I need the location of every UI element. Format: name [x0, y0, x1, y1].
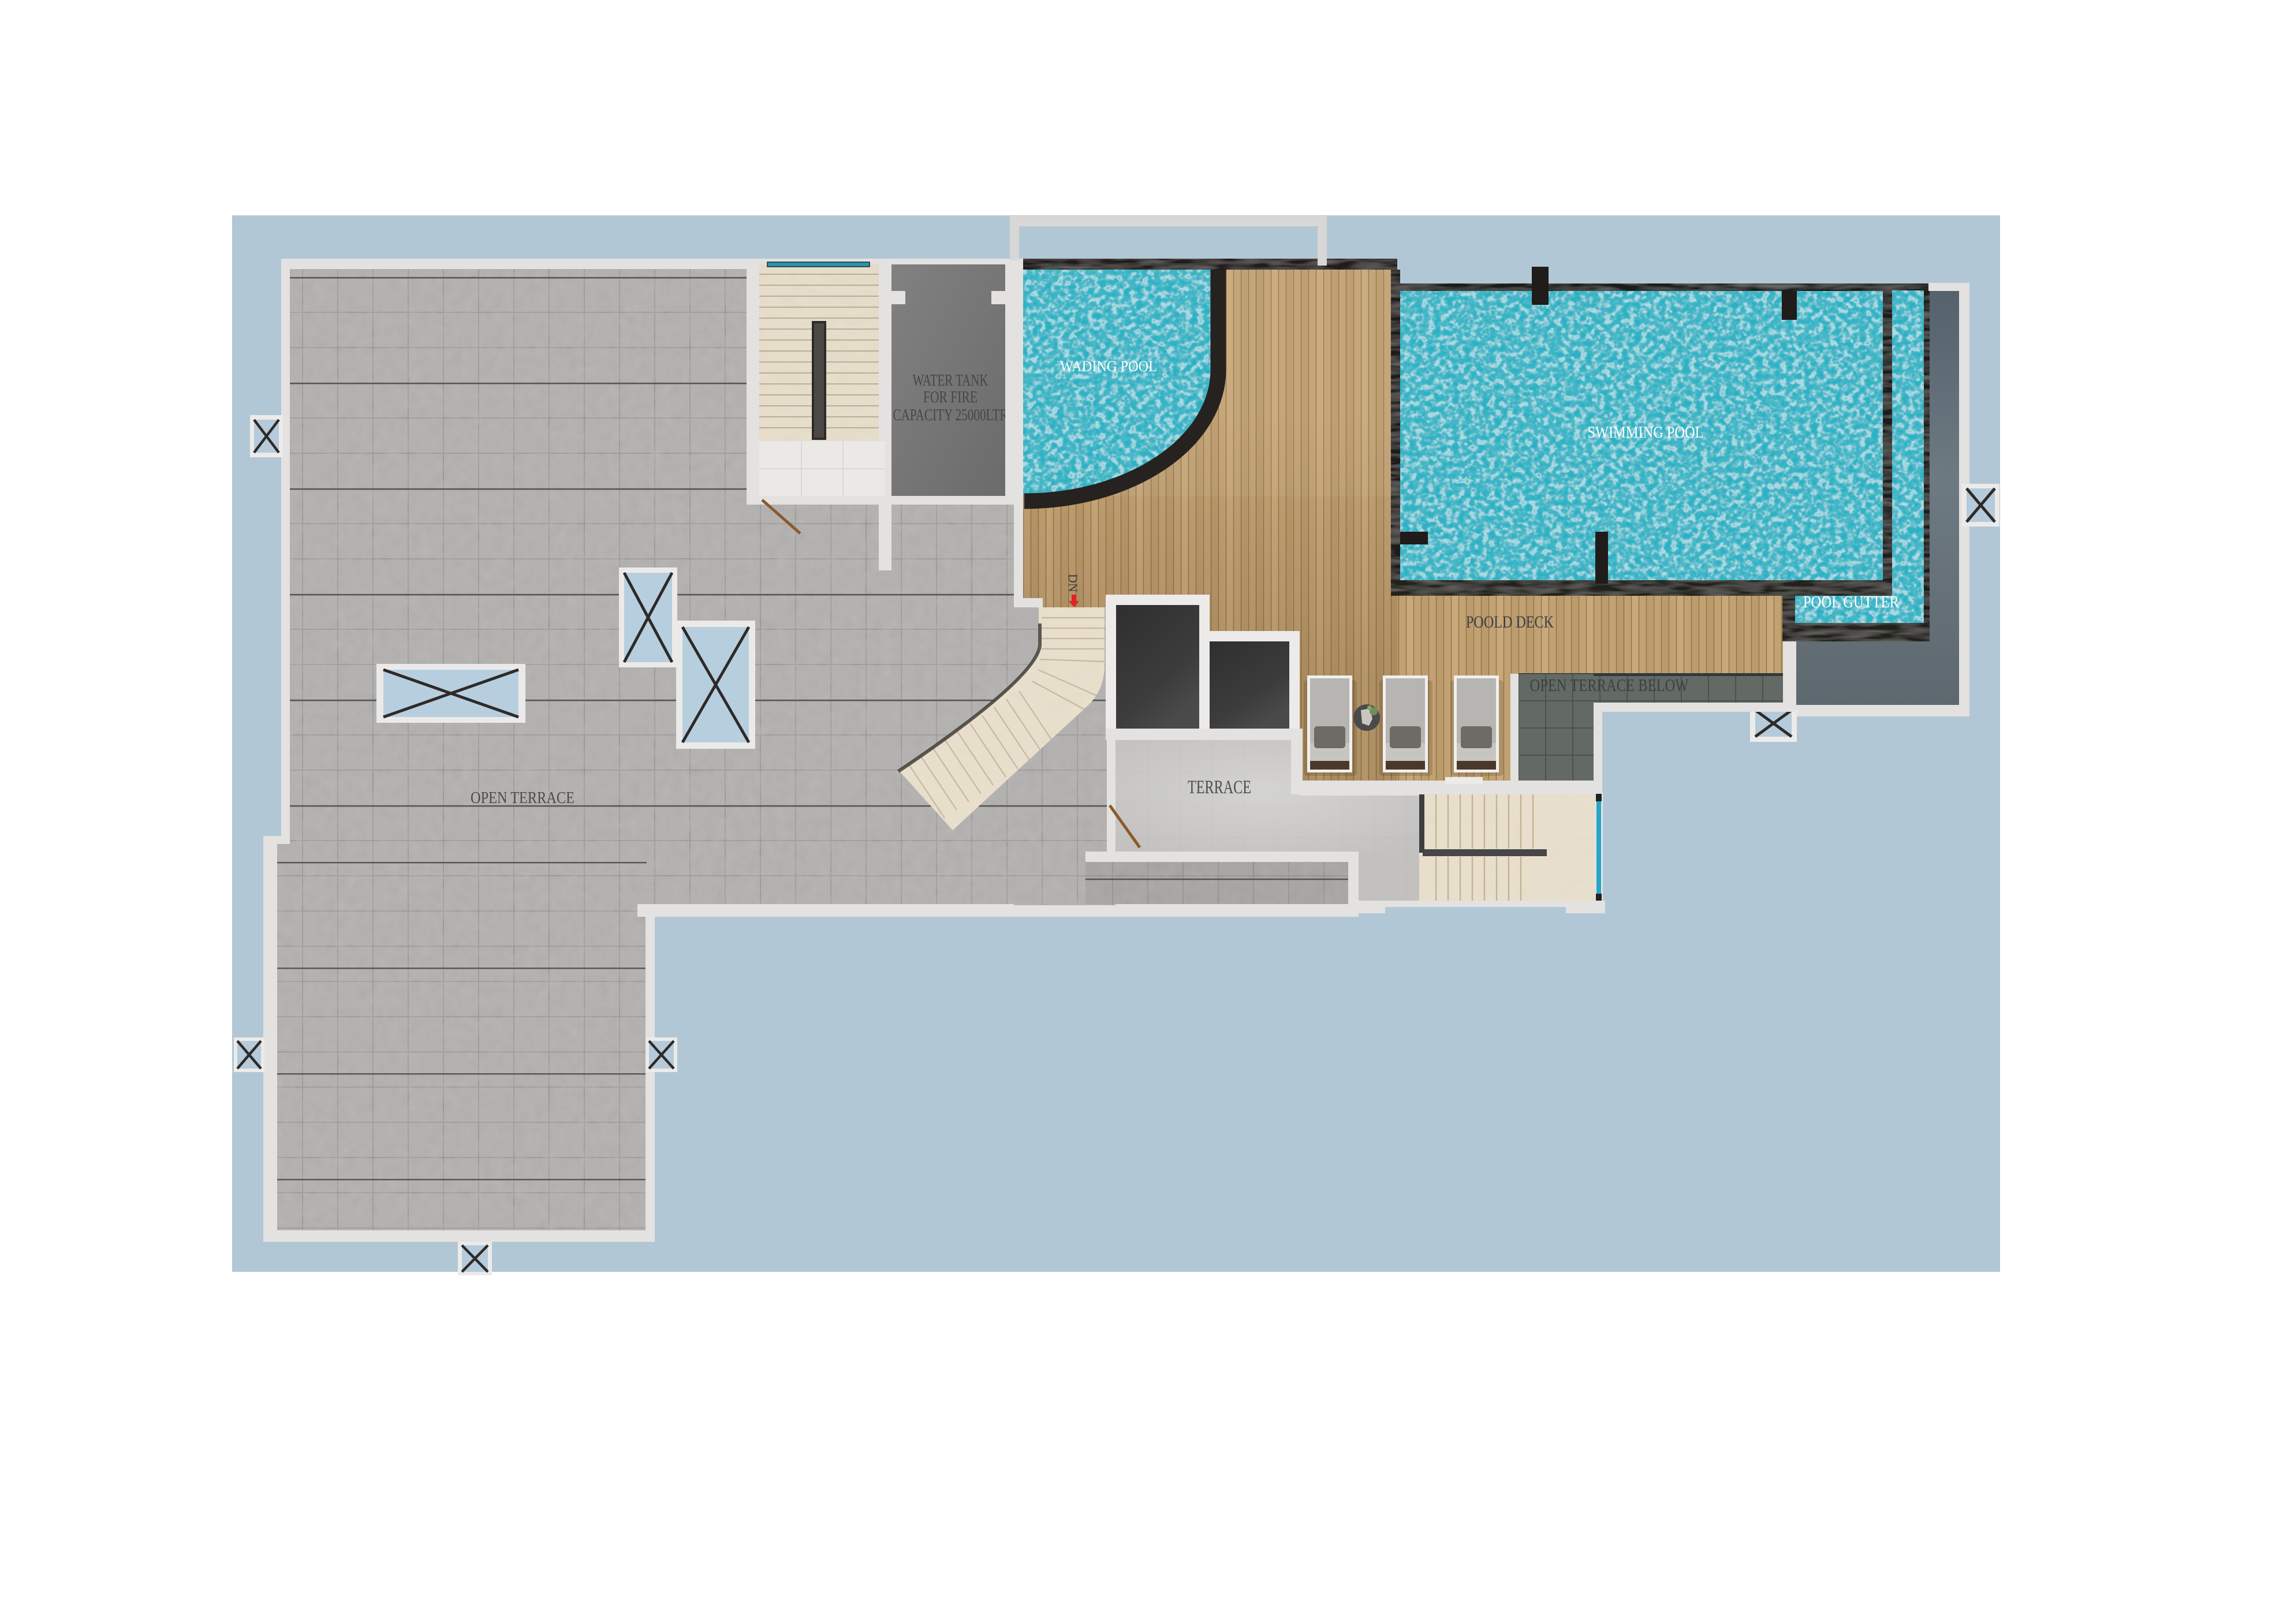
svg-text:CAPACITY 25000LTR: CAPACITY 25000LTR: [893, 406, 1008, 424]
svg-text:SWIMMING POOL: SWIMMING POOL: [1588, 424, 1704, 442]
svg-text:FOR FIRE: FOR FIRE: [923, 388, 978, 406]
svg-text:DN: DN: [1066, 574, 1080, 592]
svg-text:TERRACE: TERRACE: [1188, 777, 1251, 798]
svg-text:POOL GUTTER: POOL GUTTER: [1803, 593, 1900, 611]
svg-text:OPEN TERRACE BELOW: OPEN TERRACE BELOW: [1530, 675, 1689, 695]
svg-text:WATER TANK: WATER TANK: [913, 371, 988, 390]
svg-text:WADING POOL: WADING POOL: [1060, 358, 1157, 375]
svg-text:OPEN TERRACE: OPEN TERRACE: [471, 789, 574, 807]
svg-text:POOLD DECK: POOLD DECK: [1466, 613, 1554, 632]
